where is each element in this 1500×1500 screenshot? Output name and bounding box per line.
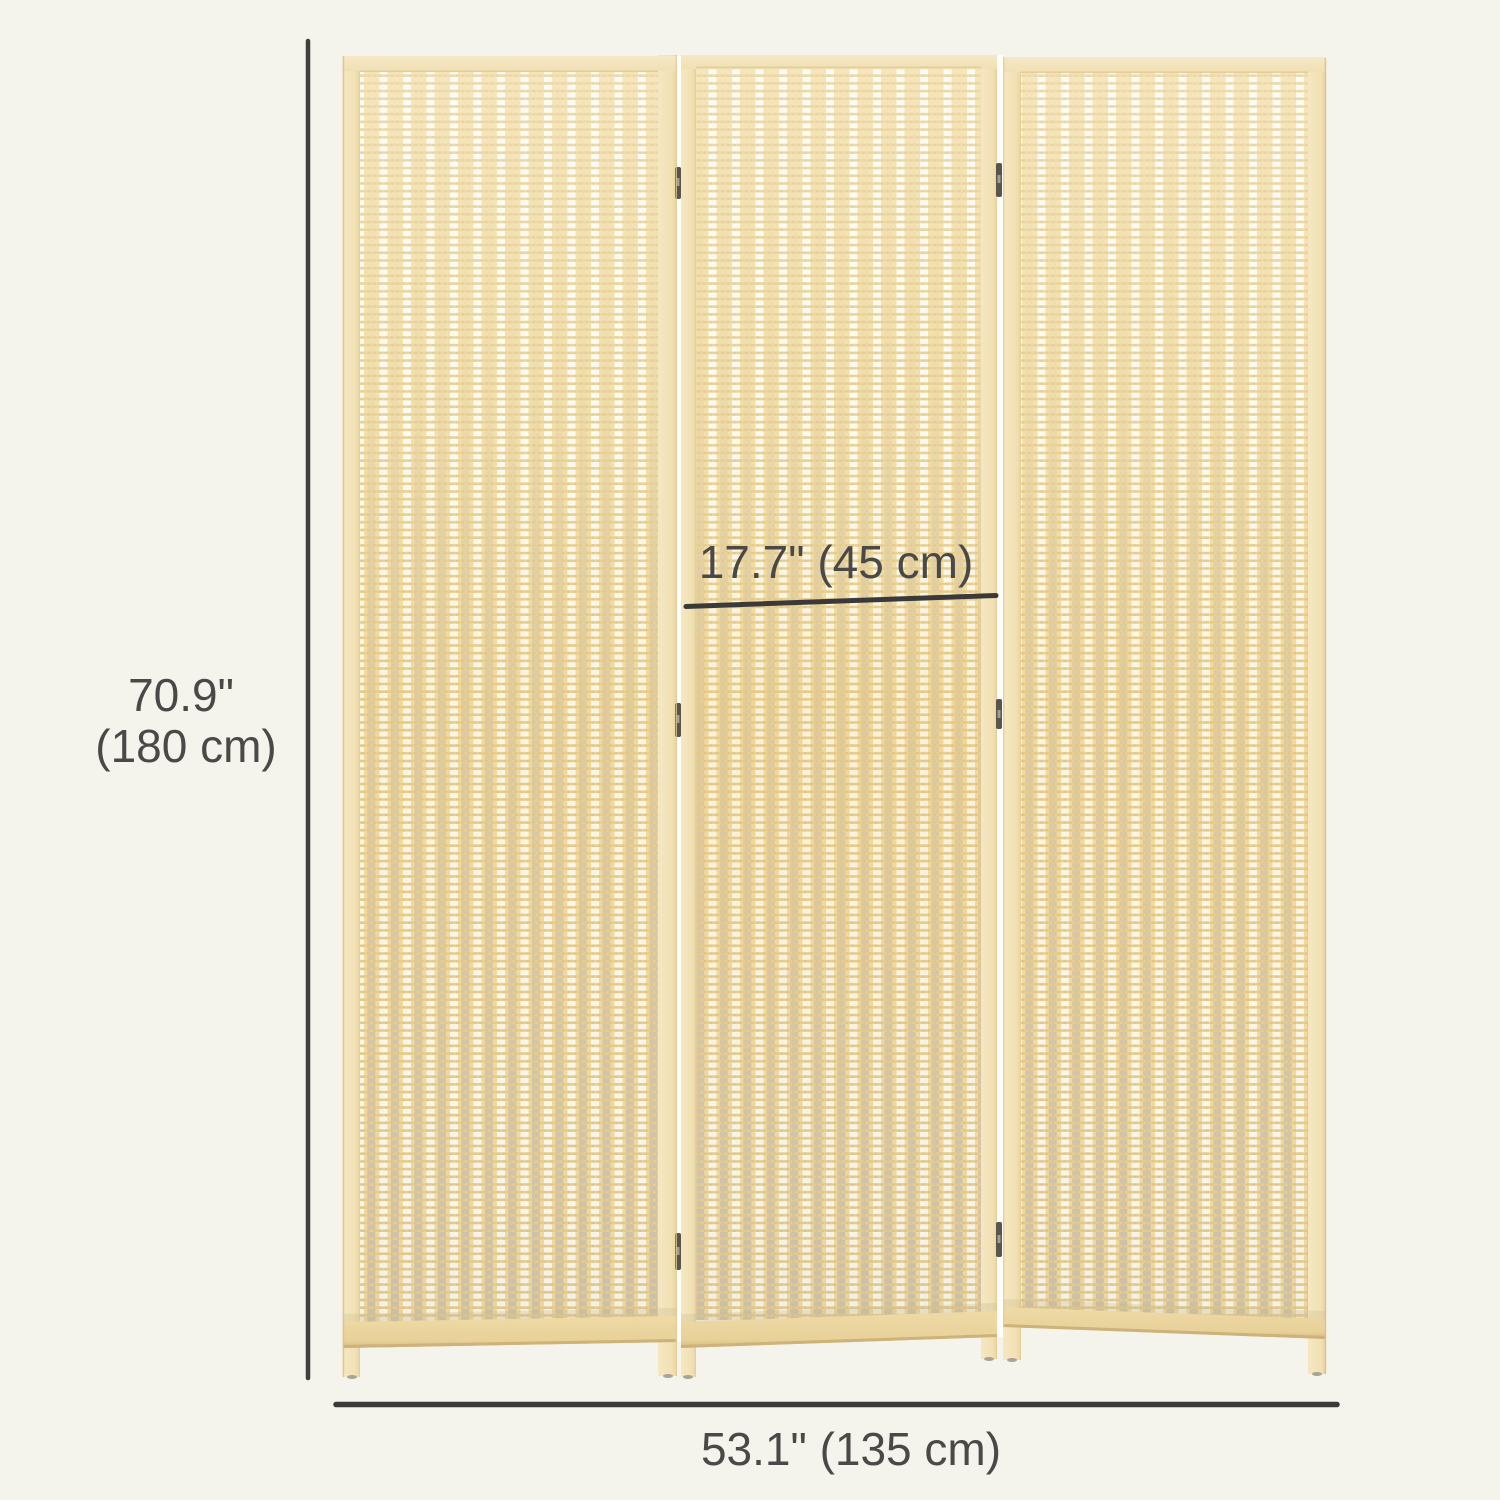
svg-text:70.9": 70.9" bbox=[128, 669, 234, 721]
svg-text:(180 cm): (180 cm) bbox=[95, 720, 276, 772]
svg-text:53.1" (135 cm): 53.1" (135 cm) bbox=[701, 1423, 1001, 1475]
svg-text:17.7" (45 cm): 17.7" (45 cm) bbox=[699, 536, 974, 588]
